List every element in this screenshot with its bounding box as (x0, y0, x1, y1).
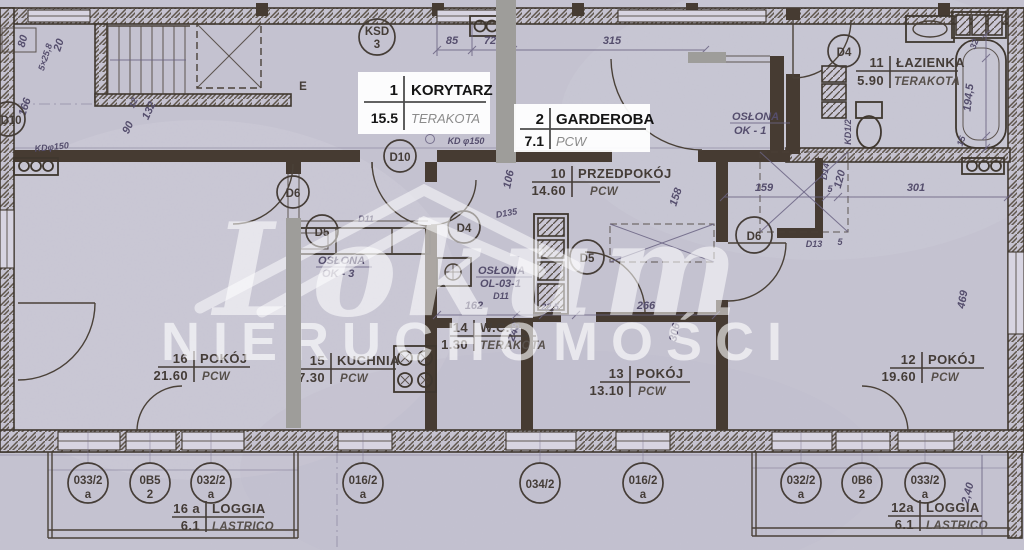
room-label-loggia-12a: 12a LOGGIA 6.1 LASTRICO (888, 500, 988, 532)
window-top-3 (28, 10, 90, 22)
svg-text:PCW: PCW (931, 372, 960, 384)
svg-text:6.1: 6.1 (895, 517, 914, 532)
overlay-garderoba-area: 7.1 (525, 133, 545, 149)
svg-text:OK - 1: OK - 1 (734, 125, 766, 137)
dim-72: 72 (484, 35, 496, 47)
svg-text:PCW: PCW (340, 373, 369, 385)
svg-text:POKÓJ: POKÓJ (928, 352, 976, 367)
overlay-korytarz-floor: TERAKOTA (411, 111, 480, 126)
svg-text:016/2: 016/2 (629, 475, 658, 487)
svg-text:a: a (798, 489, 805, 501)
overlay-garderoba-number: 2 (536, 111, 544, 128)
svg-text:7.30: 7.30 (298, 370, 325, 385)
svg-text:034/2: 034/2 (526, 479, 555, 491)
svg-text:a: a (640, 489, 647, 501)
window-right (1008, 252, 1024, 334)
svg-text:2: 2 (859, 489, 865, 501)
svg-text:D4: D4 (837, 47, 852, 59)
tag-d13: D13 (806, 239, 823, 249)
svg-text:LASTRICO: LASTRICO (926, 520, 988, 532)
elevator-label: E (299, 81, 307, 93)
svg-text:LASTRICO: LASTRICO (212, 521, 274, 533)
svg-text:2: 2 (147, 489, 153, 501)
gray-bar-korytarz-garderoba (496, 0, 516, 163)
svg-text:D10: D10 (389, 152, 410, 164)
window-top-2 (618, 10, 766, 22)
svg-text:3: 3 (374, 39, 380, 51)
svg-text:a: a (208, 489, 215, 501)
svg-text:032/2: 032/2 (787, 475, 816, 487)
svg-text:ŁAZIENKA: ŁAZIENKA (896, 55, 965, 70)
room-label-loggia-16a: 16 a LOGGIA 6.1 LASTRICO (172, 501, 274, 533)
bath-corner-shaft (952, 12, 1006, 38)
bath-duct-stack (822, 66, 846, 118)
watermark-subtitle: NIERUCHOMOŚCI (161, 312, 795, 372)
kd-bath: KD1/2 (843, 119, 853, 145)
dim-159: 159 (755, 182, 774, 194)
overlay-korytarz-area: 15.5 (371, 110, 398, 126)
svg-text:033/2: 033/2 (74, 475, 103, 487)
dim-85: 85 (446, 35, 459, 47)
svg-text:D6: D6 (747, 231, 762, 243)
svg-text:11: 11 (869, 55, 884, 70)
svg-text:TERAKOTA: TERAKOTA (894, 76, 960, 88)
overlay-korytarz-number: 1 (390, 82, 398, 99)
svg-text:KSD: KSD (365, 26, 389, 38)
floorplan-scan: E (0, 0, 1024, 550)
svg-text:16 a: 16 a (173, 501, 200, 516)
overlay-label-korytarz: 1 KORYTARZ 15.5 TERAKOTA (358, 72, 493, 134)
svg-text:6.1: 6.1 (181, 518, 200, 533)
svg-text:12a: 12a (891, 500, 914, 515)
svg-text:0B6: 0B6 (851, 475, 872, 487)
svg-text:a: a (360, 489, 367, 501)
svg-text:016/2: 016/2 (349, 475, 378, 487)
svg-text:LOGGIA: LOGGIA (212, 501, 266, 516)
dim-301: 301 (907, 182, 925, 194)
svg-text:12: 12 (901, 352, 916, 367)
overlay-label-garderoba: 2 GARDEROBA 7.1 PCW (514, 104, 655, 152)
svg-text:10: 10 (551, 166, 566, 181)
svg-text:5.90: 5.90 (857, 73, 884, 88)
svg-text:D10: D10 (0, 115, 21, 127)
overlay-korytarz-name: KORYTARZ (411, 82, 493, 99)
floorplan-svg: E (0, 0, 1024, 550)
gray-bar-garderoba-top (688, 52, 726, 63)
room-label-lazienka: 11 ŁAZIENKA 5.90 TERAKOTA (856, 55, 965, 88)
svg-text:13.10: 13.10 (589, 383, 624, 398)
svg-text:OSŁONA: OSŁONA (732, 111, 779, 123)
overlay-garderoba-floor: PCW (556, 134, 588, 149)
window-bottom-row (58, 432, 954, 450)
gray-bar-pokoj-kuchnia (286, 218, 301, 428)
dim-315: 315 (603, 35, 622, 47)
window-left (0, 210, 14, 268)
svg-text:0B5: 0B5 (139, 475, 161, 487)
svg-text:033/2: 033/2 (911, 475, 940, 487)
svg-text:PCW: PCW (638, 386, 667, 398)
svg-text:032/2: 032/2 (197, 475, 226, 487)
kd150-mid: KD φ150 (448, 136, 485, 146)
svg-text:19.60: 19.60 (881, 369, 916, 384)
svg-text:LOGGIA: LOGGIA (926, 500, 980, 515)
svg-text:PRZEDPOKÓJ: PRZEDPOKÓJ (578, 166, 672, 181)
watermark: Lokum NIERUCHOMOŚCI (161, 190, 795, 372)
svg-text:a: a (85, 489, 92, 501)
overlay-garderoba-name: GARDEROBA (556, 111, 655, 128)
svg-text:PCW: PCW (202, 371, 231, 383)
